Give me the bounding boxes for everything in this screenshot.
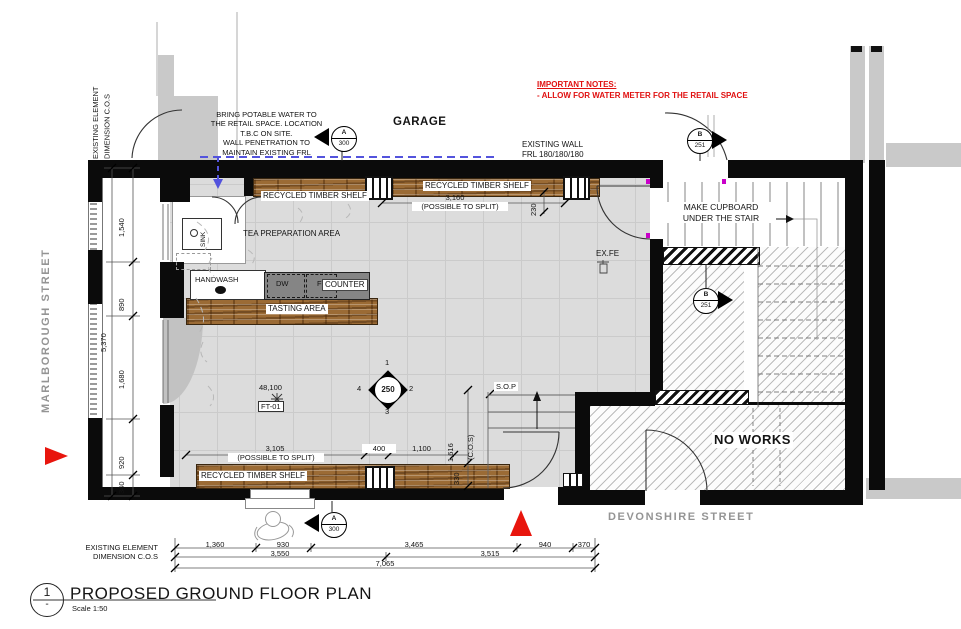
red-marker-triangle-left <box>45 447 68 465</box>
grid-diamond-marker: 250 <box>369 371 407 409</box>
wall-bottom <box>558 487 575 505</box>
finish-tag: FT-01 <box>258 401 284 412</box>
shelf-bracket <box>365 466 395 490</box>
tasting-area-label: TASTING AREA <box>266 304 328 314</box>
dim-bottom-5: 370 <box>559 540 609 549</box>
no-works-wall-line <box>747 402 845 405</box>
dim-400: 400 <box>362 444 396 453</box>
sop-label: S.O.P <box>494 382 518 391</box>
existing-element-note-bottom: EXISTING ELEMENT DIMENSION C.O.S <box>80 543 158 562</box>
pier <box>160 405 174 477</box>
marlborough-street-label: MARLBOROUGH STREET <box>40 233 54 413</box>
section-marker-a-top: A 300 <box>331 126 357 152</box>
section-letter: A <box>322 513 346 525</box>
no-works-wall-bottom <box>700 490 862 505</box>
dim-left-overall: 5,370 <box>99 308 108 352</box>
dim-bottom-shelf: 3,105 <box>250 444 300 453</box>
existing-structure <box>851 46 862 52</box>
section-sheet: 251 <box>694 301 718 311</box>
section-marker-a-bottom: A 300 <box>321 512 347 538</box>
make-cupboard-note: MAKE CUPBOARD UNDER THE STAIR <box>666 202 776 223</box>
section-letter: B <box>694 289 718 301</box>
important-notes-title: IMPORTANT NOTES: <box>537 80 616 90</box>
section-arrow-icon <box>314 128 329 146</box>
drawing-scale: Scale 1:50 <box>72 604 107 613</box>
section-letter: B <box>688 129 712 141</box>
shelf-label-top-right: RECYCLED TIMBER SHELF <box>423 181 531 191</box>
dim-bottom-overall: 7,065 <box>360 559 410 568</box>
shelf-bracket <box>563 176 590 200</box>
section-marker-b-mid: B 251 <box>693 288 719 314</box>
section-arrow-icon <box>304 514 319 532</box>
cupboard-under-stair-area <box>663 263 744 395</box>
dim-bottom-1: 1,360 <box>190 540 240 549</box>
dim-subtotal-1: 3,550 <box>255 549 305 558</box>
wall-left <box>88 160 102 202</box>
no-works-wall-hatched <box>655 390 749 405</box>
dim-bottom-2: 930 <box>258 540 308 549</box>
drawing-number: 1 <box>31 584 63 599</box>
cupboard-wall-hatched <box>663 247 760 265</box>
no-works-label: NO WORKS <box>712 432 793 448</box>
wall-stair-partition <box>650 160 663 188</box>
shelf-label-bottom: RECYCLED TIMBER SHELF <box>199 471 307 481</box>
shelf-label-top-left: RECYCLED TIMBER SHELF <box>261 191 369 201</box>
person-figure <box>255 512 294 543</box>
sidewalk <box>886 143 961 167</box>
existing-structure <box>869 46 884 163</box>
tea-preparation-label: TEA PREPARATION AREA <box>243 229 340 239</box>
drawing-title: PROPOSED GROUND FLOOR PLAN <box>70 583 372 604</box>
wall-right <box>845 160 863 505</box>
dim-left-4: 920 <box>117 425 126 469</box>
dim-1100: 1,100 <box>399 444 444 453</box>
important-notes-body: - ALLOW FOR WATER METER FOR THE RETAIL S… <box>537 91 777 101</box>
existing-structure <box>871 46 882 52</box>
section-arrow-icon <box>712 131 727 149</box>
handwash-label: HANDWASH <box>195 275 238 284</box>
wall-top-right <box>728 160 847 178</box>
diamond-number: 250 <box>374 376 402 404</box>
window-box <box>563 473 583 487</box>
dishwasher-label: DW <box>276 279 289 288</box>
dim-1616-note: (C.O.S) <box>466 406 475 460</box>
wall-stair-partition <box>650 239 663 398</box>
diamond-n4: 4 <box>357 384 361 393</box>
garage-label: GARAGE <box>393 115 448 129</box>
handwash-basin <box>215 286 226 294</box>
fridge-label: F <box>317 279 322 288</box>
no-works-wall-bottom <box>575 490 645 505</box>
red-marker-triangle-bottom <box>510 510 532 536</box>
existing-element-note-top: EXISTING ELEMENT DIMENSION C.O.S <box>90 55 113 159</box>
existing-wall-note: EXISTING WALL FRL 180/180/180 <box>522 140 584 160</box>
sink-tap <box>190 229 198 237</box>
shelf-bracket <box>365 176 393 200</box>
wall-right-outer <box>869 160 885 490</box>
devonshire-street-label: DEVONSHIRE STREET <box>608 511 754 525</box>
diamond-n1: 1 <box>385 358 389 367</box>
pier <box>160 262 184 318</box>
dim-330: 330 <box>452 461 461 485</box>
floor-plan-drawing: GARAGE IMPORTANT NOTES: - ALLOW FOR WATE… <box>0 0 961 629</box>
dim-left-5: 340 <box>117 464 126 494</box>
drawing-revision: - <box>31 599 63 613</box>
section-arrow-icon <box>718 291 733 309</box>
dim-shelf-depth: 230 <box>529 191 538 216</box>
level-value: 48,100 <box>259 383 282 392</box>
wall-left <box>88 250 102 304</box>
dim-bottom-shelf-note: (POSSIBLE TO SPLIT) <box>228 453 324 462</box>
diamond-n2: 2 <box>409 384 413 393</box>
dim-left-3: 1,680 <box>117 345 126 389</box>
dim-subtotal-2: 3,515 <box>465 549 515 558</box>
section-marker-b-top: B 251 <box>687 128 713 154</box>
section-sheet: 300 <box>322 525 346 535</box>
stair-flight-area <box>758 247 845 408</box>
counter-label: COUNTER <box>322 279 368 291</box>
section-letter: A <box>332 127 356 139</box>
existing-structure <box>850 46 865 163</box>
dim-top-shelf: 3,160 <box>430 193 480 202</box>
dim-top-shelf-note: (POSSIBLE TO SPLIT) <box>412 202 508 211</box>
dim-left-1: 1,540 <box>117 193 126 237</box>
pier <box>160 178 190 202</box>
section-sheet: 251 <box>688 141 712 151</box>
future-fixture <box>176 253 211 270</box>
sink-label: SINK <box>200 221 208 247</box>
dim-bottom-3: 3,465 <box>389 540 439 549</box>
entry-step <box>245 498 315 509</box>
dim-left-2: 890 <box>117 267 126 311</box>
ex-fe-label: EX.FE <box>596 249 619 259</box>
drawing-number-bubble: 1 - <box>30 583 64 617</box>
no-works-wall-left <box>575 392 590 505</box>
section-sheet: 300 <box>332 139 356 149</box>
dim-1616: 1,616 <box>446 404 455 462</box>
